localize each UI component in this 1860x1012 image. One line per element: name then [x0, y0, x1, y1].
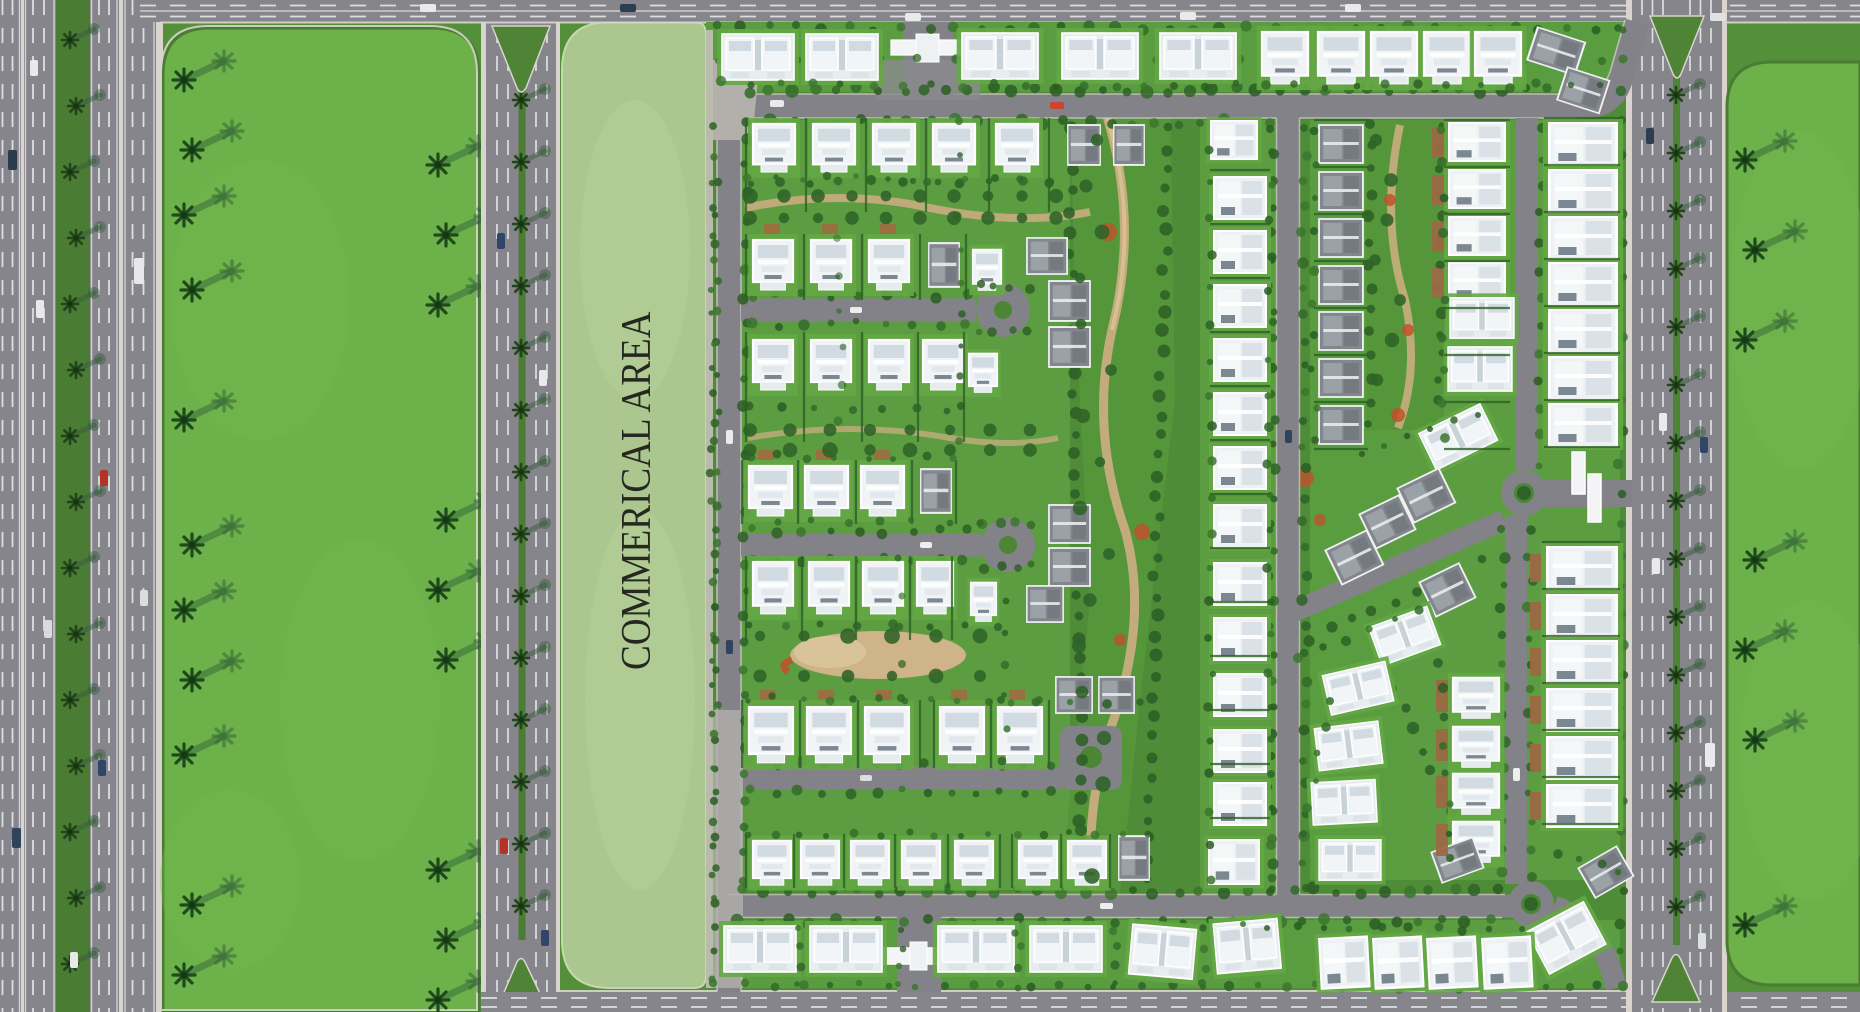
svg-text:COMMERICAL AREA: COMMERICAL AREA [613, 311, 660, 670]
